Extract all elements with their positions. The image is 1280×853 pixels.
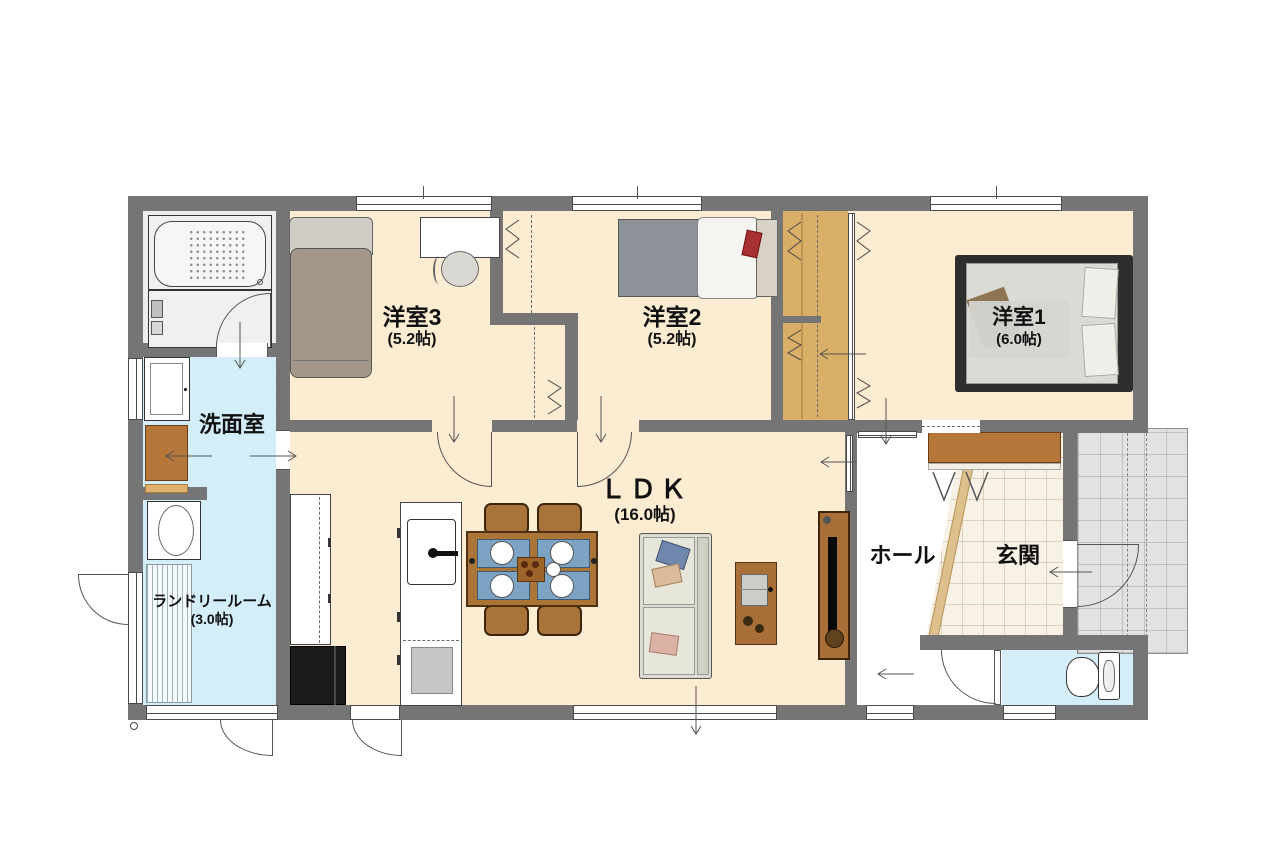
- swing-arrow-icon: [595, 396, 607, 448]
- tray-item: [521, 561, 528, 568]
- window-laundry-bottom: [146, 705, 278, 720]
- window-tick-2: [637, 186, 638, 199]
- closet-sliding-door: [848, 213, 855, 420]
- table-plant-icon: [743, 616, 753, 626]
- wall-genkan-bottom: [920, 635, 1148, 650]
- coat-hook-icon: [966, 472, 988, 502]
- room-area: (6.0帖): [969, 331, 1069, 349]
- island-handle: [397, 655, 400, 665]
- closet-bedroom2-front-dash: [531, 215, 532, 313]
- toilet-tank-lid: [1103, 660, 1115, 692]
- cupboard-handle: [328, 594, 331, 603]
- floor-plan: 洋室3 (5.2帖) 洋室2 (5.2帖) 洋室1 (6.0帖) ＬＤＫ (16…: [0, 0, 1280, 853]
- room-name: 洋室2: [643, 304, 702, 330]
- washroom-shelf: [145, 484, 188, 493]
- sofa-back: [697, 537, 709, 675]
- window-toilet: [1003, 705, 1056, 720]
- room-name: ランドリールーム: [152, 593, 272, 610]
- corner-survey-mark: [130, 722, 138, 730]
- slide-arrow-icon: [815, 456, 861, 468]
- refrigerator-gap: [334, 646, 336, 705]
- washing-machine-drum: [158, 505, 194, 556]
- room-name: 洗面室: [199, 412, 265, 437]
- tv-board-item: [823, 516, 831, 524]
- wall-closet-divider: [783, 316, 821, 323]
- entrance-porch: [1077, 428, 1188, 654]
- basket: [825, 629, 844, 648]
- slide-arrow-icon: [814, 348, 870, 360]
- folding-door-icon: [857, 222, 870, 262]
- label-bedroom3: 洋室3 (5.2帖): [352, 304, 472, 350]
- porch-dash-line-2: [1146, 433, 1147, 647]
- vanity-knob: [184, 388, 187, 391]
- island-handle: [397, 612, 400, 622]
- hanger-icon: [506, 220, 519, 260]
- bed-pillow: [1081, 323, 1119, 377]
- laundry-drying-deck: [146, 564, 192, 703]
- room-name: ホール: [869, 543, 935, 568]
- wall-closet-step-3: [565, 313, 578, 432]
- label-washroom: 洗面室: [184, 412, 280, 438]
- bed-fold-line: [293, 360, 369, 361]
- folding-door-icon: [857, 378, 870, 408]
- closet-wood-front-dash: [817, 215, 818, 417]
- window-washroom: [128, 358, 143, 420]
- kitchen-back-door-arc: [352, 720, 402, 756]
- window-hall: [866, 705, 914, 720]
- bathroom-door-leaf: [270, 293, 271, 347]
- plate: [550, 574, 574, 598]
- window-bedroom3: [356, 196, 492, 211]
- desk-chair-back: [433, 256, 445, 284]
- island-handle: [397, 528, 400, 538]
- shower-fixture-icon: [151, 300, 163, 318]
- closet-bedroom3-front-dash: [534, 327, 535, 418]
- kitchen-cupboard: [290, 494, 331, 645]
- room-area: (5.2帖): [612, 331, 732, 350]
- opening-bedroom3: [432, 420, 492, 432]
- bathtub-drain-icon: [257, 279, 263, 285]
- label-bedroom1: 洋室1 (6.0帖): [969, 306, 1069, 348]
- room-name: ＬＤＫ: [600, 474, 690, 504]
- bath-divider: [148, 289, 272, 291]
- label-bedroom2: 洋室2 (5.2帖): [612, 304, 732, 350]
- vanity-door: [150, 363, 183, 415]
- cutlery-dot: [591, 558, 597, 564]
- room-name: 洋室3: [383, 304, 442, 330]
- wall-bedrooms-ldk: [276, 420, 845, 432]
- swing-arrow-icon: [448, 396, 460, 448]
- shoe-cabinet: [928, 432, 1061, 463]
- swing-arrow-icon: [690, 686, 702, 740]
- room-area: (3.0帖): [142, 611, 282, 628]
- tray-item: [532, 561, 539, 568]
- wall-right-lower: [1133, 640, 1148, 720]
- opening-genkan-dash: [922, 426, 980, 427]
- hanger-icon: [548, 380, 561, 416]
- shower-fixture-icon: [151, 321, 163, 335]
- hanger-icon: [788, 330, 801, 360]
- entrance-door-leaf: [1077, 544, 1139, 545]
- laundry-window-arc: [220, 720, 273, 756]
- room-area: (16.0帖): [585, 505, 705, 525]
- toilet-bowl: [1066, 657, 1100, 697]
- refrigerator: [290, 646, 346, 705]
- coat-hook-icon: [933, 472, 955, 502]
- label-hall: ホール: [855, 543, 950, 569]
- hanger-icon: [788, 222, 801, 262]
- plate: [490, 541, 514, 565]
- laptop: [741, 574, 768, 606]
- kitchen-back-door: [350, 705, 400, 720]
- laundry-door-leaf: [78, 574, 128, 575]
- room-area: (5.2帖): [352, 331, 472, 350]
- room-name: 洋室1: [992, 306, 1046, 329]
- swing-arrow-icon: [880, 398, 892, 450]
- door-laundry-exterior: [128, 572, 143, 704]
- shoe-cabinet-counter: [928, 463, 1061, 470]
- bathtub-mat: [188, 229, 246, 279]
- small-plate: [546, 562, 561, 577]
- room-name: 玄関: [996, 543, 1040, 568]
- porch-dash-line-1: [1127, 433, 1128, 647]
- bed-pillow: [1081, 267, 1118, 319]
- mouse-dot: [768, 587, 773, 592]
- kitchen-stove: [411, 647, 453, 694]
- label-entrance: 玄関: [983, 543, 1053, 569]
- cushion-pink: [649, 632, 680, 656]
- tv: [828, 537, 837, 633]
- slide-arrow-icon: [160, 450, 216, 462]
- opening-bedroom2: [577, 420, 639, 432]
- desk-chair: [441, 251, 479, 287]
- bed-headboard: [756, 219, 778, 297]
- table-plant-icon: [755, 624, 764, 633]
- kitchen-back-door-leaf: [401, 720, 402, 756]
- plate: [490, 574, 514, 598]
- slide-arrow-icon: [872, 668, 918, 680]
- laptop-hinge: [741, 589, 768, 590]
- label-laundry: ランドリールーム (3.0帖): [142, 593, 282, 627]
- cutlery-dot: [469, 558, 475, 564]
- window-ldk-sliding: [573, 705, 777, 720]
- dining-chair: [484, 605, 529, 636]
- wall-right-upper: [1133, 196, 1148, 433]
- swing-arrow-icon: [234, 322, 246, 374]
- faucet-head-icon: [428, 548, 438, 558]
- dining-chair: [537, 605, 582, 636]
- laundry-door-arc: [78, 575, 128, 625]
- tray-item: [526, 570, 533, 577]
- slide-arrow-icon: [246, 450, 302, 462]
- window-tick-3: [996, 186, 997, 199]
- bedroom3-door-leaf: [491, 432, 492, 487]
- kitchen-cupboard-dash: [319, 497, 320, 643]
- laundry-window-leaf: [272, 720, 273, 756]
- bedroom2-door-leaf: [577, 432, 578, 487]
- kitchen-counter-dash: [403, 640, 459, 641]
- window-tick-1: [423, 186, 424, 199]
- cupboard-handle: [328, 538, 331, 547]
- label-ldk: ＬＤＫ (16.0帖): [585, 474, 705, 525]
- bed-blanket: [618, 219, 700, 297]
